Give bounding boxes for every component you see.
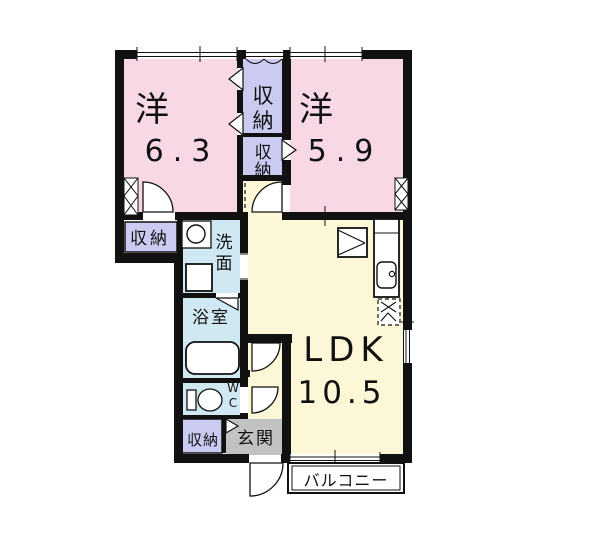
washing-machine-icon [186,264,212,291]
hatched-window-left [124,178,138,215]
wall-segment [115,253,183,263]
wall-segment [174,454,249,463]
window-bedroom2-top [290,49,362,59]
window-closet-top [246,49,283,59]
wall-segment [182,415,248,419]
entry-label: 玄関 [237,429,275,449]
wall-segment [281,454,290,463]
closet-left-label: 収納 [130,229,170,249]
wall-segment [237,58,243,68]
ldk-size: 10.5 [297,375,386,411]
wall-segment [174,253,183,463]
wall-segment [237,135,243,212]
bedroom2-size: 5.9 [308,134,383,169]
closet-mid-label: 収納 [255,143,272,181]
window-right-wall [404,330,412,363]
washroom-label: 洗面 [216,233,233,274]
wall-segment [238,293,248,298]
bedroom2-label: 洋 [299,90,333,130]
kitchen-sink-icon [377,262,396,288]
stove-space-icon [378,299,400,325]
wall-segment [282,160,291,185]
floor-plan: 洋 6.3 洋 5.9 収納 収納 収納 洗面 浴室 WC LDK 10.5 収… [0,0,600,541]
wall-segment [240,334,292,343]
wall-segment [283,50,290,59]
washbasin-icon [187,225,205,243]
window-bedroom1-top [137,49,237,59]
hatched-window-right [395,178,408,210]
bedroom1-label: 洋 [135,90,169,130]
closet-entry-label: 収納 [187,431,219,449]
toilet-icon [187,389,222,411]
wall-segment [182,293,216,298]
wall-segment [175,212,243,220]
wall-segment [282,343,291,455]
wall-segment [403,50,412,463]
washroom-door-opening [240,254,248,279]
refrigerator-space-icon [338,228,367,257]
ldk-label: LDK [303,330,388,370]
bedroom1-size: 6.3 [145,134,220,169]
bathtub-icon [186,342,239,374]
balcony-label: バルコニー [304,471,389,490]
wall-segment [240,212,248,253]
wall-segment [237,50,246,59]
wall-segment [240,370,250,377]
front-door-icon [250,463,283,496]
wall-segment [237,90,243,113]
bathroom-label: 浴室 [192,308,230,328]
wall-segment [115,50,124,263]
closet-top-label: 収納 [253,84,274,133]
wall-segment [240,280,248,334]
wall-segment [282,58,291,140]
wall-segment [243,133,282,137]
